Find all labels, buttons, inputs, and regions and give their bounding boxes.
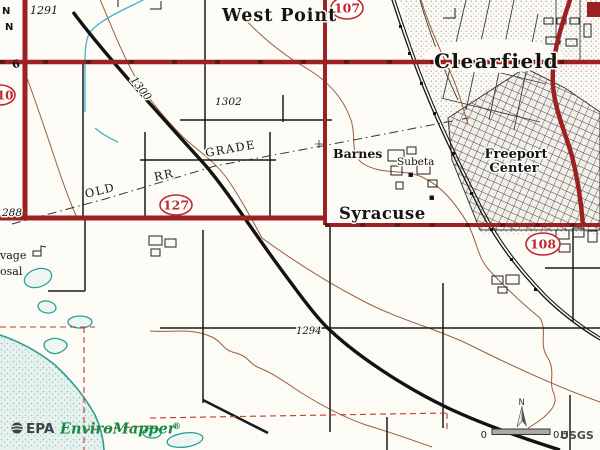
elevation-label-1294: 1294 [296,326,321,337]
enviromapper-wordmark: EnviroMapper [59,421,177,438]
usgs-attribution: USGS [560,429,594,442]
registered-mark: ® [172,422,181,432]
place-label-syracuse: Syracuse [339,204,426,223]
elevation-label-1291: 1291 [30,4,58,17]
route-shield-127: 127 [160,195,192,215]
shield-108-number: 108 [530,237,556,252]
sewage-label-line1: vage [0,249,26,262]
place-label-barnes: Barnes [333,146,382,161]
scale-start-label: 0 [481,430,487,441]
sewage-label-line2: osal [0,265,23,278]
route-shield-108: 108 [526,233,560,255]
epa-enviromapper-branding: EPA EnviroMapper ® [12,421,182,438]
edge-label-n1: N [2,6,10,17]
epa-flower-icon [12,423,23,434]
place-label-freeport-line2: Center [489,161,538,176]
enviromapper-map-view: 107 110 127 108 1291 N N 6 West Point Cl… [0,0,600,450]
epa-wordmark: EPA [26,421,55,437]
elevation-label-1302: 1302 [215,96,242,108]
place-label-west-point: West Point [221,6,337,26]
shield-107-number: 107 [334,1,360,16]
topo-map-canvas[interactable]: 107 110 127 108 1291 N N 6 West Point Cl… [0,0,600,450]
route-shield-110: 110 [0,85,15,105]
edge-label-n2: N [5,22,13,33]
elevation-label-288: 288 [1,207,22,219]
place-label-subeta: Subeta [397,156,434,168]
shield-127-number: 127 [163,198,189,213]
shield-110-number: 110 [0,89,14,103]
place-label-clearfield: Clearfield [434,49,559,73]
place-label-freeport-line1: Freeport [484,147,547,162]
